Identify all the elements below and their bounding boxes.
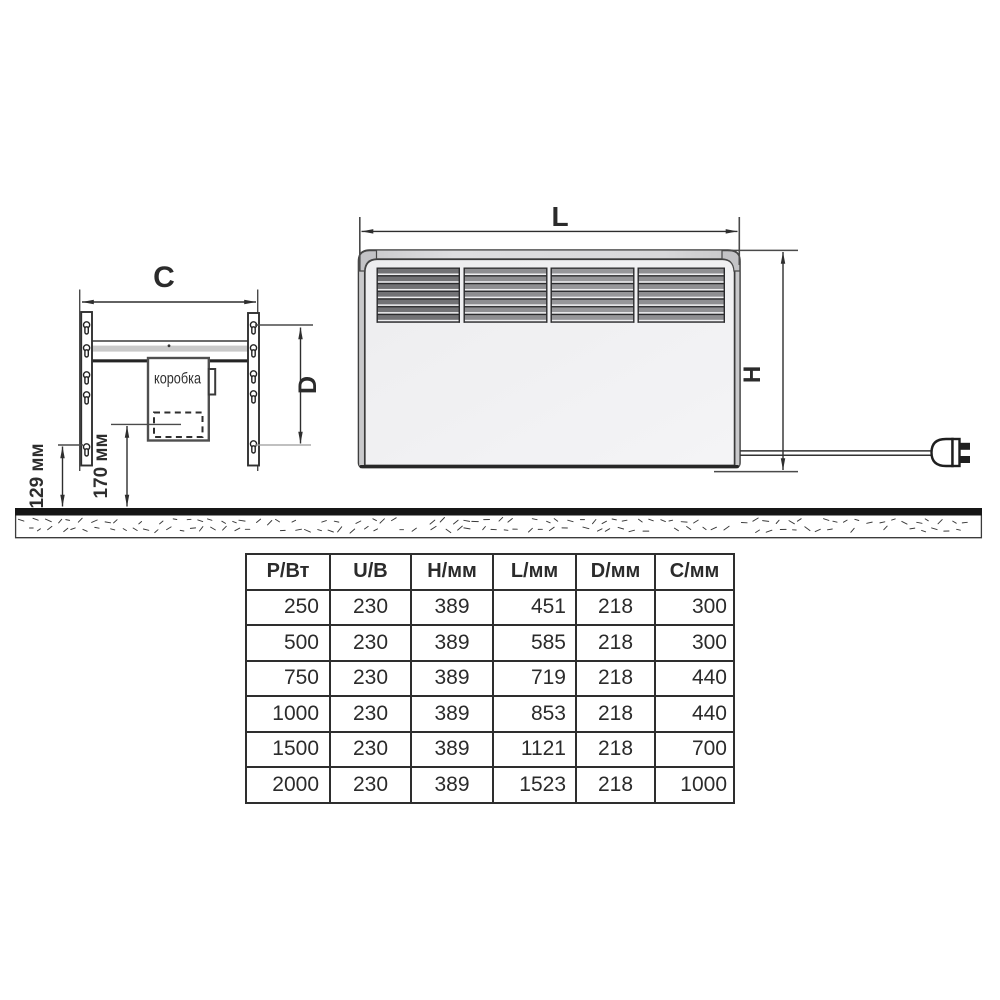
svg-text:C: C [153,261,175,294]
svg-text:129 мм: 129 мм [27,443,48,508]
svg-text:D: D [294,376,322,394]
svg-text:170 мм: 170 мм [91,433,112,498]
svg-text:коробка: коробка [154,371,201,388]
svg-text:H: H [739,366,766,383]
svg-text:L: L [551,201,568,232]
